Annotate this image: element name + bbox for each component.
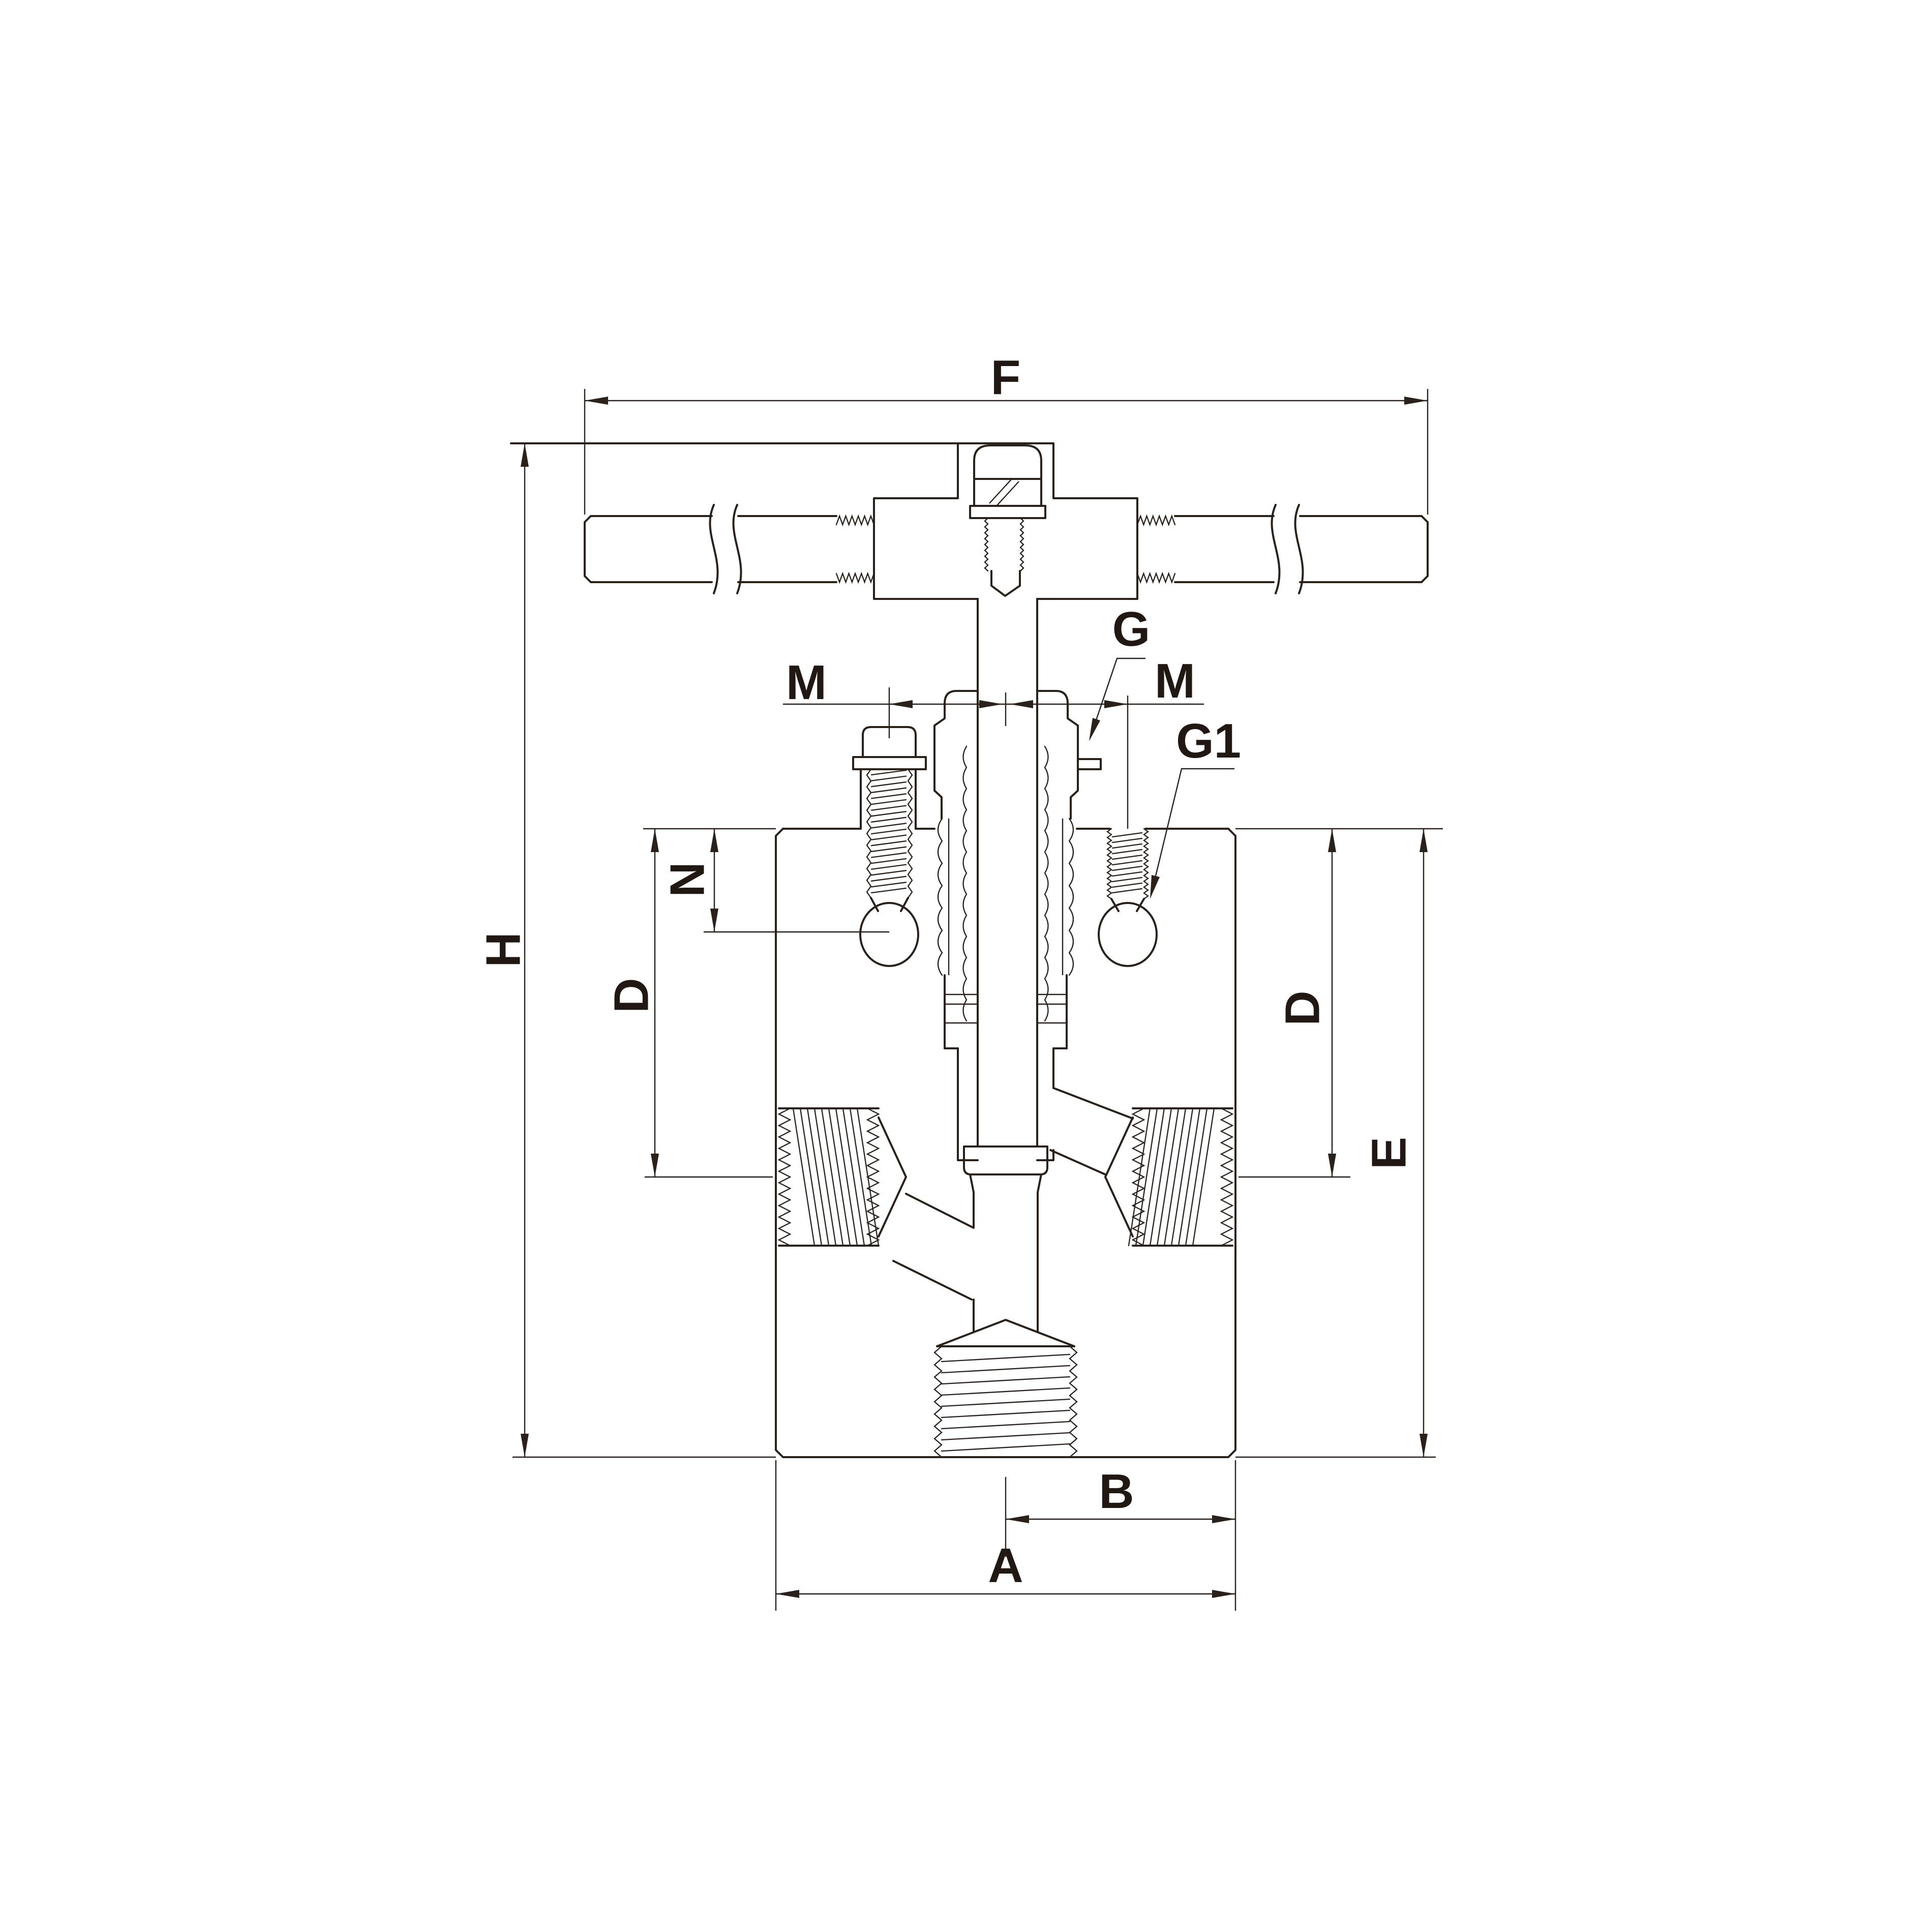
dim-label-D-left: D xyxy=(605,978,659,1013)
left-port xyxy=(779,1108,974,1300)
dim-label-G: G xyxy=(1112,602,1151,656)
right-lock-stud xyxy=(1099,829,1157,966)
dim-label-H: H xyxy=(476,932,531,967)
dim-M: M M xyxy=(783,654,1204,829)
dim-label-D-right: D xyxy=(1276,990,1330,1025)
drawing-page: F H M M G G1 N D xyxy=(0,0,1932,1932)
bonnet xyxy=(934,691,1101,1021)
dim-G: G xyxy=(1089,602,1150,741)
packing-box xyxy=(945,975,1067,1160)
dim-B: B xyxy=(1006,1460,1235,1611)
bottom-port xyxy=(934,1320,1077,1457)
dim-label-M-left: M xyxy=(786,655,827,710)
dim-F: F xyxy=(585,350,1428,515)
right-passage xyxy=(1050,1088,1133,1174)
dim-N: N xyxy=(643,829,889,932)
dim-E: E xyxy=(1235,829,1436,1457)
dim-label-M-right: M xyxy=(1155,654,1195,708)
dim-label-A: A xyxy=(988,1538,1023,1593)
dim-label-G1: G1 xyxy=(1176,714,1241,768)
left-passage xyxy=(893,1194,974,1300)
break-mark-right xyxy=(1272,505,1303,593)
left-ball xyxy=(860,903,918,966)
left-screw-washer xyxy=(853,757,926,769)
dim-D-right: D xyxy=(1235,829,1443,1177)
dim-label-B: B xyxy=(1099,1464,1134,1519)
dim-H: H xyxy=(476,443,776,1457)
spindle xyxy=(978,599,1037,1146)
screw-washer xyxy=(970,506,1045,518)
dim-label-F: F xyxy=(991,350,1021,405)
needle xyxy=(964,1146,1047,1332)
break-mark-left xyxy=(710,505,741,593)
dim-G1: G1 xyxy=(1150,714,1241,899)
right-ball xyxy=(1099,903,1157,966)
valve-section-drawing: F H M M G G1 N D xyxy=(0,0,1932,1932)
screw-slot xyxy=(989,479,1019,506)
handle-screw xyxy=(970,445,1045,596)
handle-hub xyxy=(511,443,1137,599)
dim-label-E: E xyxy=(1362,1137,1416,1169)
left-lock-screw xyxy=(853,727,926,966)
dim-label-N: N xyxy=(660,862,715,897)
right-port xyxy=(1050,1088,1232,1246)
bonnet-sleeve xyxy=(958,1048,1053,1160)
bonnet-lock-tab xyxy=(1078,759,1101,769)
